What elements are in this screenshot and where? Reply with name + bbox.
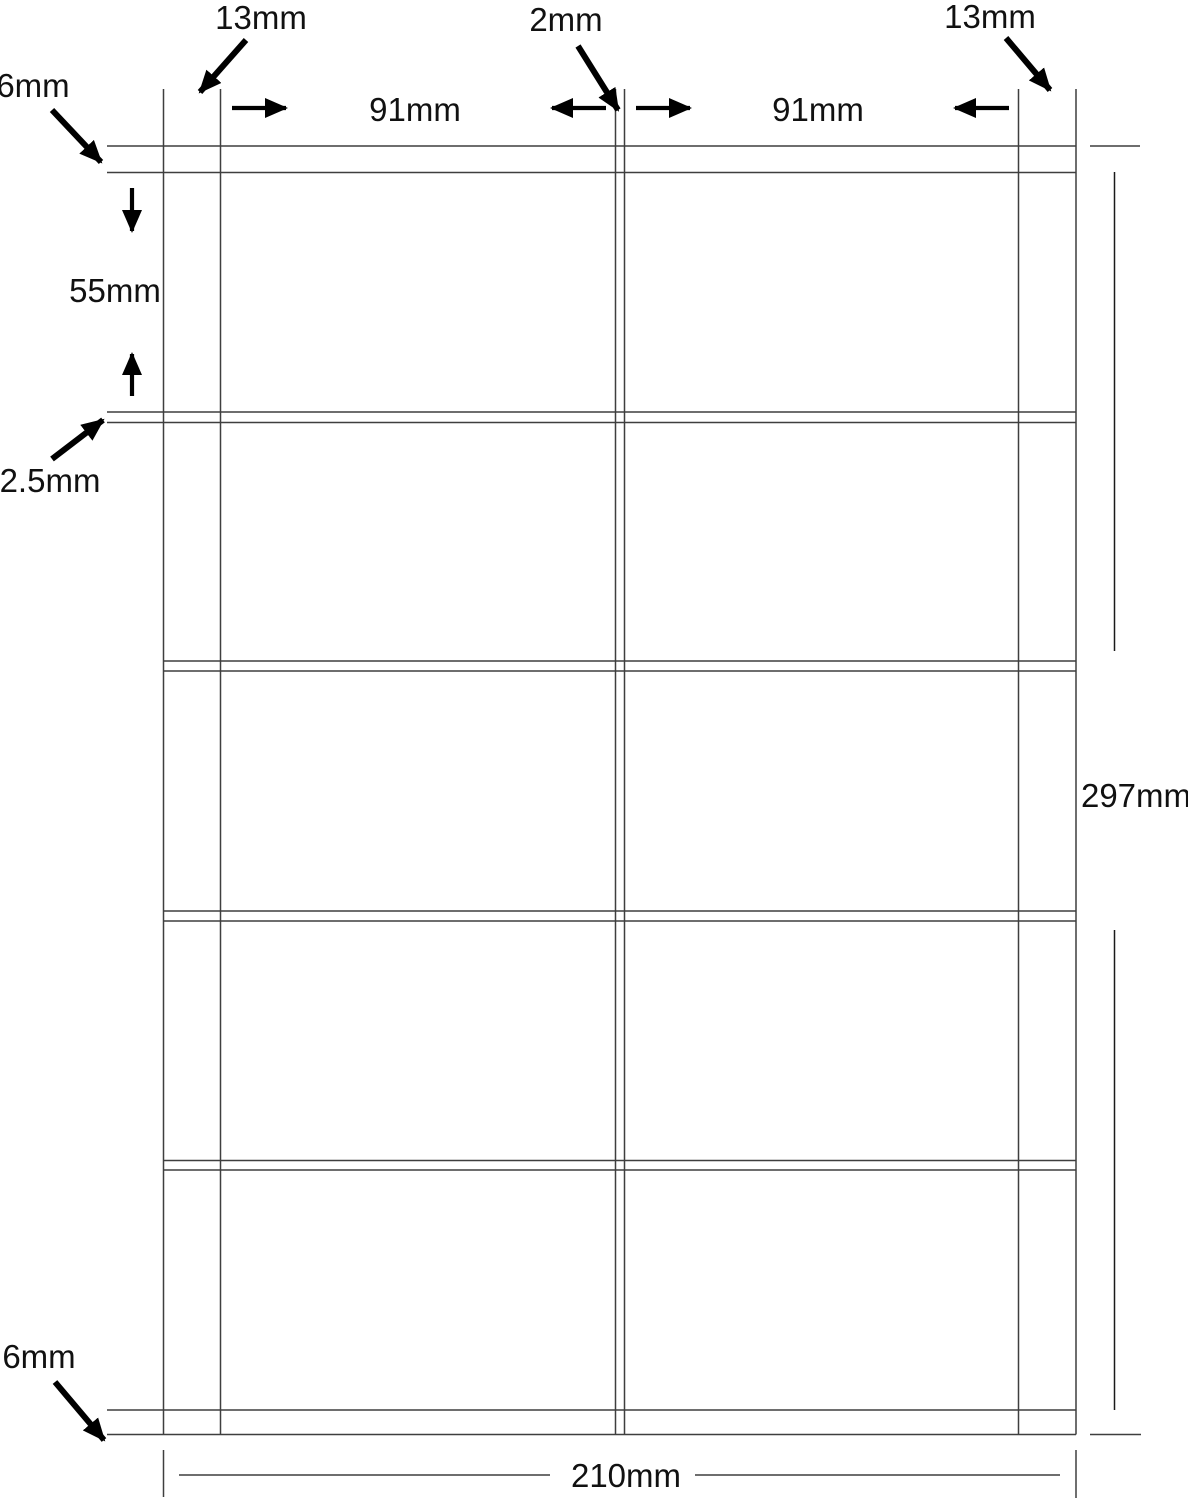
row-gap-arrow: [52, 420, 103, 459]
row-gap-label: 2.5mm: [0, 462, 100, 499]
bottom-margin-label: 6mm: [2, 1338, 75, 1375]
left-callouts: 55mm 2.5mm 6mm: [0, 188, 161, 1440]
page-width-dimension: 210mm: [164, 1450, 1077, 1498]
label-height-label: 55mm: [69, 272, 161, 309]
right-margin-arrow: [1006, 38, 1050, 90]
right-margin-label: 13mm: [944, 0, 1036, 35]
page-height-label: 297mm: [1081, 777, 1188, 814]
col1-width-label: 91mm: [369, 91, 461, 128]
center-gap-label: 2mm: [529, 1, 602, 38]
left-margin-arrow: [200, 40, 246, 92]
col2-width-label: 91mm: [772, 91, 864, 128]
page-height-dimension: 297mm: [1081, 146, 1188, 1435]
bottom-margin-arrow: [55, 1382, 104, 1440]
top-margin-label: 6mm: [0, 67, 70, 104]
left-margin-label: 13mm: [215, 0, 307, 36]
center-gap-arrow: [578, 46, 618, 110]
diagram-svg: 297mm 210mm 13mm 2mm 13mm 6mm 91mm: [0, 0, 1188, 1500]
sheet-grid: [107, 89, 1076, 1435]
page-width-label: 210mm: [571, 1457, 681, 1494]
top-callouts: 13mm 2mm 13mm 6mm: [0, 0, 1050, 162]
top-margin-arrow: [52, 110, 101, 162]
label-width-annotations: 91mm 91mm: [232, 91, 1009, 128]
label-sheet-dimension-diagram: 297mm 210mm 13mm 2mm 13mm 6mm 91mm: [0, 0, 1188, 1500]
